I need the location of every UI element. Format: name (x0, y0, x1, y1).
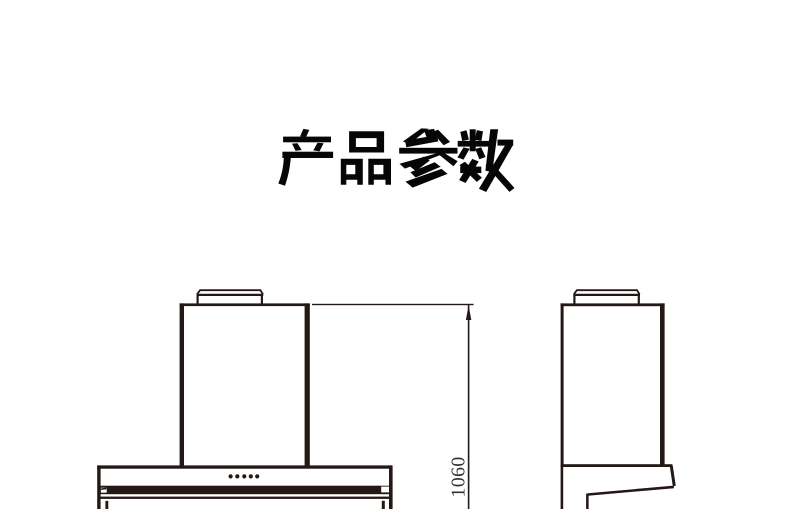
svg-text:1060: 1060 (448, 456, 470, 497)
